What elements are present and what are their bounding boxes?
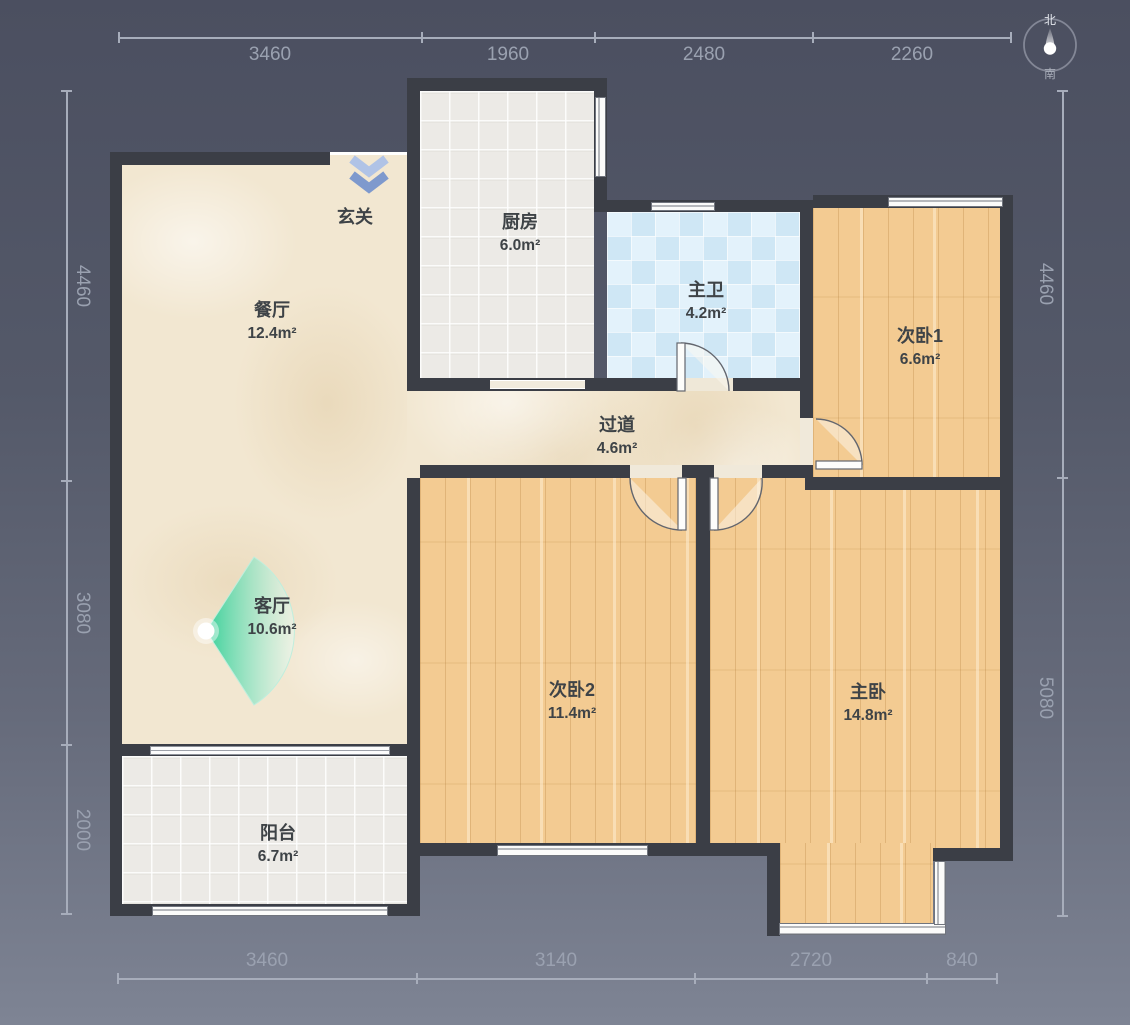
- dim-tick: [694, 973, 696, 984]
- floor-plan-viewer: 北 南 玄关 厨房 6.0m² 主卫 4.2m² 次卧1 6.6m² 餐厅 12…: [0, 0, 1130, 1025]
- dim-top-4: 2260: [891, 44, 933, 66]
- room-label-living: 客厅 10.6m²: [247, 595, 296, 641]
- window-bathroom-top: [651, 202, 715, 211]
- room-name-balcony: 阳台: [258, 822, 299, 845]
- dim-tick: [594, 32, 596, 43]
- dim-tick: [1057, 90, 1068, 92]
- window-balcony-bottom: [152, 906, 388, 916]
- room-label-kitchen: 厨房 6.0m²: [500, 211, 541, 257]
- dim-line-bottom: [117, 978, 998, 980]
- window-kitchen-right: [595, 97, 606, 177]
- balcony-sliding-door: [150, 746, 390, 755]
- compass-south-label: 南: [1044, 65, 1056, 82]
- window-bedroom2-bottom: [497, 845, 648, 856]
- dim-bottom-3: 2720: [790, 950, 832, 972]
- dim-bottom-4: 840: [946, 950, 978, 972]
- room-name-living: 客厅: [247, 595, 296, 618]
- room-label-bedroom2: 次卧2 11.4m²: [548, 679, 596, 725]
- bath-door-opening: [677, 378, 733, 391]
- dim-top-2: 1960: [487, 44, 529, 66]
- room-label-master: 主卧 14.8m²: [843, 681, 892, 727]
- dim-left-3: 2000: [71, 809, 93, 851]
- room-master-floor: [710, 478, 1000, 850]
- room-area-living: 10.6m²: [247, 618, 296, 641]
- room-master-bay-floor: [780, 843, 933, 923]
- compass-north-label: 北: [1044, 11, 1056, 28]
- wall-kitchen-top: [407, 78, 607, 91]
- dim-bottom-2: 3140: [535, 950, 577, 972]
- wall-hall-bottom-l: [420, 465, 630, 478]
- dim-tick: [1057, 477, 1068, 479]
- room-area-bedroom2: 11.4m²: [548, 702, 596, 725]
- window-bay-right: [934, 861, 946, 925]
- dim-tick: [61, 480, 72, 482]
- dim-left-2: 3080: [71, 592, 93, 634]
- master-door-opening: [714, 465, 762, 478]
- room-area-master: 14.8m²: [843, 704, 892, 727]
- bedroom1-door-opening: [800, 418, 813, 465]
- dim-line-right: [1062, 90, 1064, 917]
- dim-tick: [812, 32, 814, 43]
- room-name-entrance: 玄关: [337, 206, 373, 229]
- room-label-bathroom: 主卫 4.2m²: [686, 279, 727, 325]
- wall-bath-bottom-l: [594, 378, 677, 391]
- window-bedroom1-top: [888, 197, 1003, 207]
- room-name-hallway: 过道: [597, 414, 638, 437]
- kitchen-door-threshold: [490, 380, 585, 389]
- room-area-bedroom1: 6.6m²: [897, 348, 943, 371]
- room-name-bedroom1: 次卧1: [897, 325, 943, 348]
- bedroom2-door-opening: [630, 465, 682, 478]
- room-name-kitchen: 厨房: [500, 211, 541, 234]
- room-label-dining: 餐厅 12.4m²: [247, 299, 296, 345]
- dim-tick: [61, 913, 72, 915]
- room-name-dining: 餐厅: [247, 299, 296, 322]
- room-area-kitchen: 6.0m²: [500, 234, 541, 257]
- dim-tick: [61, 90, 72, 92]
- wall-bath-bottom-r: [733, 378, 813, 391]
- room-label-entrance: 玄关: [337, 206, 373, 229]
- dim-tick: [926, 973, 928, 984]
- window-bay-bottom: [779, 923, 946, 935]
- dim-left-1: 4460: [71, 265, 93, 307]
- room-label-balcony: 阳台 6.7m²: [258, 822, 299, 868]
- wall-dining-top: [110, 152, 330, 165]
- dim-tick: [996, 973, 998, 984]
- wall-right-outer: [1000, 195, 1013, 861]
- room-area-dining: 12.4m²: [247, 322, 296, 345]
- dim-bottom-1: 3460: [246, 950, 288, 972]
- room-name-bathroom: 主卫: [686, 279, 727, 302]
- dim-tick: [1010, 32, 1012, 43]
- room-area-balcony: 6.7m²: [258, 845, 299, 868]
- dim-tick: [118, 32, 120, 43]
- dim-tick: [1057, 915, 1068, 917]
- wall-kitchen-left: [407, 78, 420, 390]
- entrance-door-threshold: [330, 152, 407, 165]
- wall-hall-bottom-r: [762, 465, 808, 478]
- dim-top-1: 3460: [249, 44, 291, 66]
- room-area-bathroom: 4.2m²: [686, 302, 727, 325]
- dim-tick: [117, 973, 119, 984]
- dim-tick: [61, 744, 72, 746]
- room-name-bedroom2: 次卧2: [548, 679, 596, 702]
- wall-bed2-master-sep: [696, 465, 710, 843]
- room-label-hallway: 过道 4.6m²: [597, 414, 638, 460]
- wall-living-bed2-sep: [407, 478, 420, 916]
- dim-top-3: 2480: [683, 44, 725, 66]
- dim-tick: [421, 32, 423, 43]
- dim-right-1: 4460: [1034, 263, 1056, 305]
- room-bedroom2-floor: [420, 478, 696, 843]
- room-name-master: 主卧: [843, 681, 892, 704]
- room-area-hallway: 4.6m²: [597, 437, 638, 460]
- wall-left-outer: [110, 152, 122, 916]
- wall-master-bottom-r: [933, 848, 1013, 861]
- dim-line-top: [118, 37, 1012, 39]
- dim-line-left: [66, 90, 68, 915]
- wall-bedroom1-bottom: [805, 477, 1000, 490]
- room-label-bedroom1: 次卧1 6.6m²: [897, 325, 943, 371]
- dim-right-2: 5080: [1034, 677, 1056, 719]
- dim-tick: [416, 973, 418, 984]
